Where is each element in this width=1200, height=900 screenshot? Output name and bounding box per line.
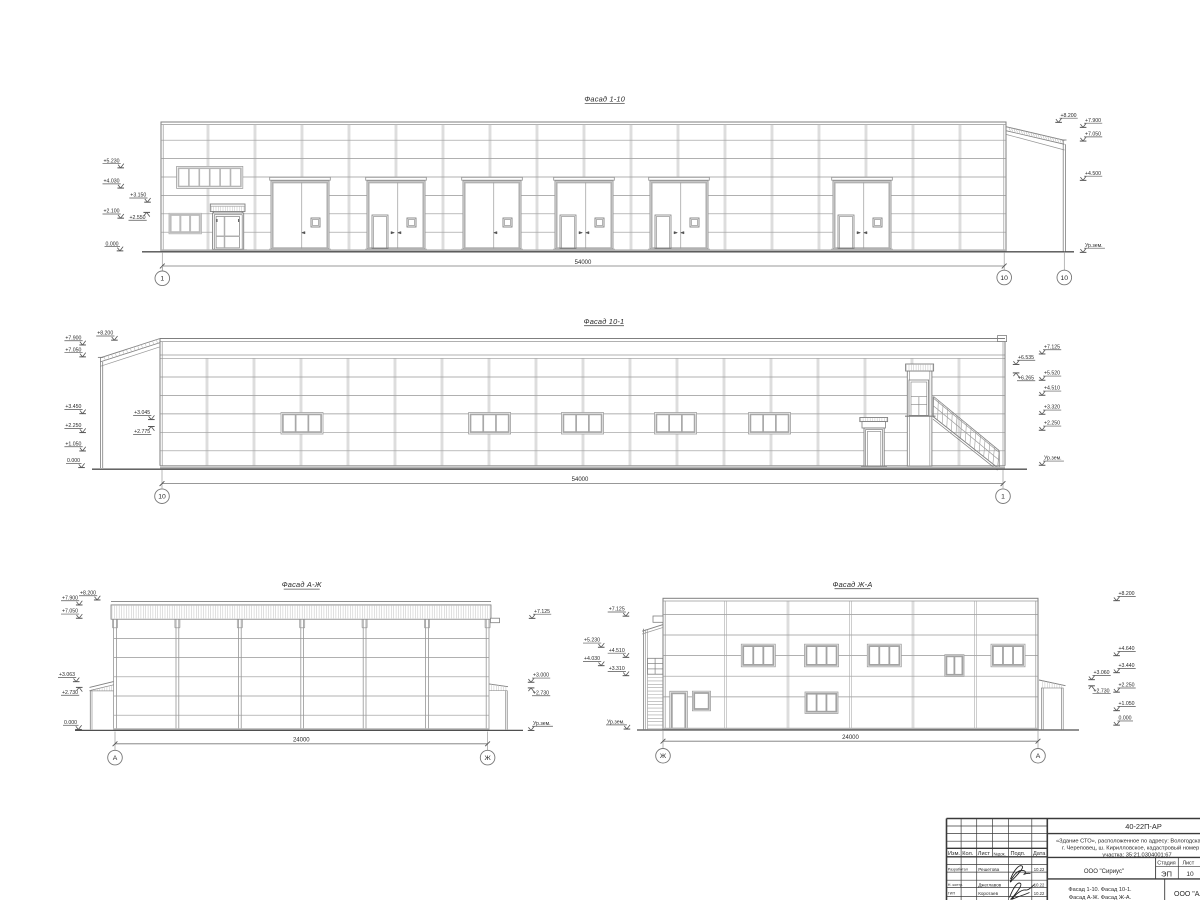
svg-text:Фасад 10-1: Фасад 10-1	[584, 317, 625, 326]
svg-text:Фасад А-Ж: Фасад А-Ж	[282, 580, 323, 589]
svg-text:Дата: Дата	[1033, 851, 1046, 857]
svg-text:«Здание СТО», расположенное по: «Здание СТО», расположенное по адресу: В…	[1056, 838, 1200, 844]
svg-text:Фасад А-Ж. Фасад Ж-А.: Фасад А-Ж. Фасад Ж-А.	[1069, 895, 1132, 900]
svg-text:Лист: Лист	[978, 851, 991, 857]
svg-text:ООО "Альянс": ООО "Альянс"	[1174, 891, 1200, 898]
svg-text:Н. контр.: Н. контр.	[948, 883, 963, 887]
svg-text:А: А	[113, 755, 118, 762]
svg-text:г. Череповец, ш. Кирилловское,: г. Череповец, ш. Кирилловское, кадастров…	[1062, 844, 1200, 851]
svg-text:Ж: Ж	[660, 753, 667, 760]
svg-text:Кол.: Кол.	[962, 851, 974, 857]
svg-text:10.22: 10.22	[1034, 891, 1045, 896]
svg-text:Фасад 1-10: Фасад 1-10	[584, 95, 625, 104]
svg-text:Коротаев: Коротаев	[978, 891, 998, 896]
svg-text:А: А	[1036, 753, 1041, 760]
svg-text:10: 10	[158, 494, 166, 501]
svg-text:Ж: Ж	[484, 755, 491, 762]
svg-text:10: 10	[1061, 275, 1069, 282]
svg-text:Лист: Лист	[1183, 861, 1195, 867]
svg-text:10.22: 10.22	[1034, 867, 1045, 872]
svg-text:ООО "Сириус": ООО "Сириус"	[1084, 869, 1124, 875]
svg-text:Стадия: Стадия	[1157, 861, 1175, 867]
svg-text:Решетова: Решетова	[978, 867, 999, 872]
svg-text:24000: 24000	[293, 737, 310, 743]
svg-text:1: 1	[1001, 494, 1005, 501]
svg-text:Фасад 1-10. Фасад 10-1.: Фасад 1-10. Фасад 10-1.	[1068, 887, 1132, 893]
svg-text:ЭП: ЭП	[1161, 869, 1172, 878]
svg-text:54000: 54000	[575, 260, 592, 266]
svg-text:10: 10	[1000, 275, 1008, 282]
svg-text:54000: 54000	[572, 477, 589, 483]
svg-text:10: 10	[1186, 871, 1194, 878]
svg-text:24000: 24000	[842, 735, 859, 741]
svg-text:Фасад Ж-А: Фасад Ж-А	[833, 580, 873, 589]
svg-text:Разработал: Разработал	[948, 867, 968, 871]
svg-text:ГИП: ГИП	[948, 892, 956, 896]
svg-text:40-22П-АР: 40-22П-АР	[1125, 822, 1162, 831]
svg-text:№док.: №док.	[993, 852, 1005, 857]
svg-text:Изм.: Изм.	[948, 851, 960, 857]
svg-text:Джеглавов: Джеглавов	[978, 882, 1001, 887]
svg-text:10.22: 10.22	[1034, 883, 1045, 888]
svg-text:Подп.: Подп.	[1011, 851, 1026, 857]
svg-text:1: 1	[160, 276, 164, 283]
